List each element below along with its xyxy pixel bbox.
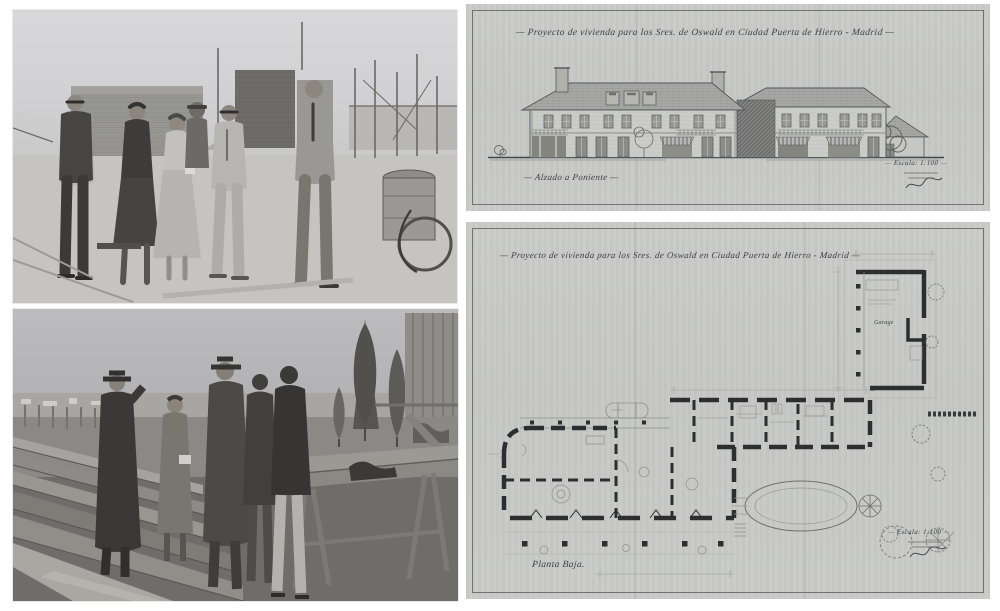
central-room-band	[520, 400, 978, 447]
elevation-caption: — Alzado a Poniente —	[523, 172, 619, 182]
lumber-yard-photo	[13, 309, 458, 601]
architect-signature	[904, 537, 948, 563]
oval-patio	[732, 481, 881, 531]
floor-plan-sheet: — Proyecto de vivienda para los Sres. de…	[466, 222, 990, 599]
construction-site-scene	[13, 10, 457, 303]
circular-planter	[859, 495, 881, 517]
garden-steps	[734, 524, 746, 536]
left-block	[522, 68, 745, 158]
room-detail-lines	[698, 404, 828, 422]
garage-room-label: Garage	[874, 320, 894, 326]
left-bush	[495, 146, 507, 158]
paper-in-hands	[179, 455, 191, 464]
lower-left-wing	[504, 428, 746, 554]
plan-scale-note: — Escala: 1:100 —	[887, 528, 950, 536]
recessed-porch	[532, 136, 566, 158]
garage-interior-lines	[864, 272, 922, 388]
awning	[776, 137, 810, 145]
dormer-windows	[606, 91, 656, 105]
elevation-drawing-sheet: — Proyecto de vivienda para los Sres. de…	[466, 4, 990, 211]
plan-caption: Planta Baja.	[531, 560, 585, 570]
construction-site-photo	[13, 10, 457, 303]
elevation-scale-note: — Escala: 1:100 —	[884, 159, 947, 167]
terrace-posts	[506, 532, 734, 554]
car-sketch	[606, 403, 648, 418]
architect-signature	[900, 168, 944, 194]
wing-partitions	[504, 428, 672, 518]
garage-wing	[844, 260, 936, 398]
photo-collage: — Proyecto de vivienda para los Sres. de…	[0, 0, 1000, 611]
awning	[660, 137, 694, 145]
lumber-yard-scene	[13, 309, 458, 601]
chimney	[556, 68, 568, 92]
awning	[826, 137, 862, 145]
interior-partitions	[694, 400, 832, 447]
